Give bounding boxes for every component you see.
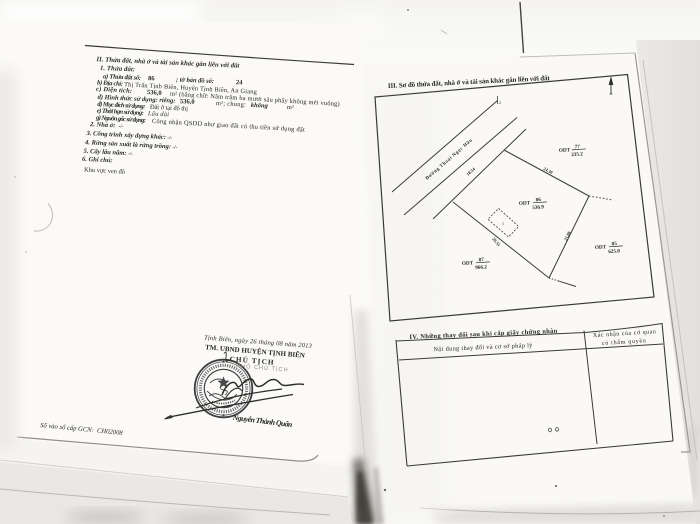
- svg-text:ODT: ODT: [462, 260, 474, 267]
- svg-text:2. Nhà ở: -/-: 2. Nhà ở: -/-: [89, 121, 124, 130]
- svg-text:m²; chung:: m²; chung:: [216, 100, 247, 109]
- svg-text:21.06: 21.06: [563, 230, 572, 242]
- svg-text:966.2: 966.2: [475, 264, 487, 271]
- svg-text:536.9: 536.9: [532, 204, 544, 211]
- svg-text:24.30: 24.30: [543, 166, 555, 175]
- svg-text:Khu vực ven đô: Khu vực ven đô: [84, 167, 125, 176]
- svg-text:Xác nhận của cơ quan: Xác nhận của cơ quan: [593, 329, 656, 339]
- svg-text:ODT: ODT: [519, 200, 531, 207]
- svg-text:ODT: ODT: [559, 147, 571, 154]
- svg-text:không: không: [251, 102, 269, 110]
- svg-text:Nội dung thay đổi và cơ sở phá: Nội dung thay đổi và cơ sở pháp lý: [433, 342, 533, 353]
- svg-text:6. Ghi chú:: 6. Ghi chú:: [82, 156, 113, 165]
- svg-text:m²: m²: [287, 104, 294, 111]
- svg-text:ODT: ODT: [595, 244, 607, 251]
- svg-text:Số vào sổ cấp GCN: CH02008: Số vào sổ cấp GCN: CH02008: [40, 422, 124, 437]
- svg-text:III. Sơ đồ thửa đất, nhà ở và: III. Sơ đồ thửa đất, nhà ở và tài sản kh…: [388, 75, 551, 90]
- svg-text:1: 1: [502, 221, 504, 226]
- svg-text:1. Thửa đất:: 1. Thửa đất:: [100, 65, 135, 74]
- svg-text:625.0: 625.0: [608, 248, 620, 255]
- svg-text:Lâu dài: Lâu dài: [147, 110, 170, 118]
- svg-text:29.55: 29.55: [491, 236, 502, 247]
- svg-text:Nguyễn Thành Quân: Nguyễn Thành Quân: [231, 413, 293, 429]
- svg-text:IV. Những thay đổi sau khi cấp: IV. Những thay đổi sau khi cấp giấy chứn…: [409, 328, 558, 341]
- svg-text:Công nhận QSDD như giao đất có: Công nhận QSDD như giao đất có thu tiền …: [152, 118, 305, 134]
- svg-text:có thẩm quyền: có thẩm quyền: [602, 337, 646, 347]
- svg-text:18.54: 18.54: [465, 166, 476, 177]
- svg-text:86: 86: [148, 75, 156, 82]
- svg-text:2: 2: [499, 100, 501, 105]
- svg-text:24: 24: [236, 79, 244, 86]
- svg-text:235.2: 235.2: [571, 151, 583, 158]
